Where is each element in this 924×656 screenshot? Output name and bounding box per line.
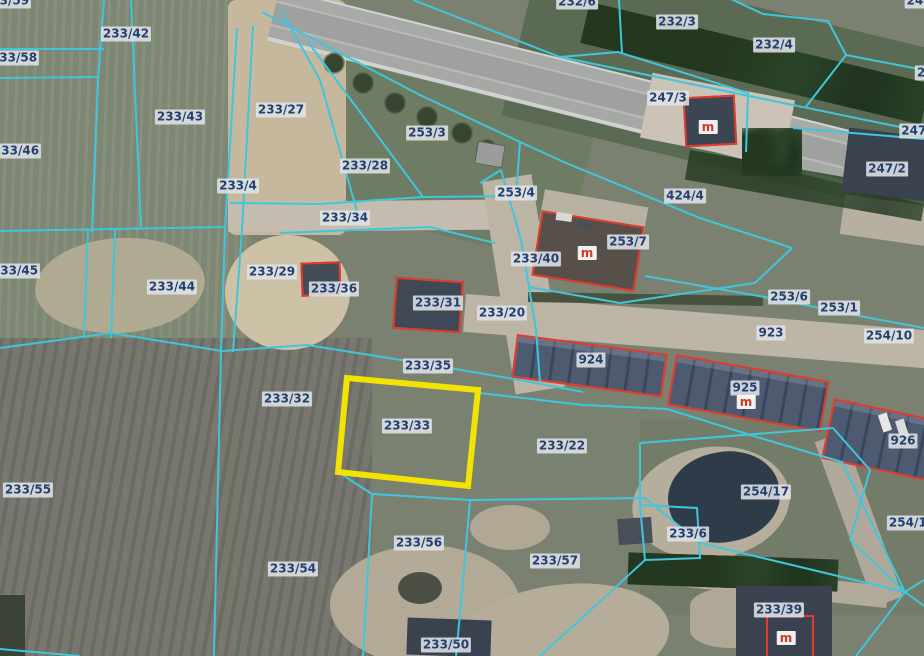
parcel-label: 233/44: [147, 280, 197, 295]
parcel-label: 926: [888, 434, 917, 449]
parcel-label: 233/31: [413, 296, 463, 311]
parcel-label: 233/32: [262, 392, 312, 407]
parcel-label: 923: [756, 326, 785, 341]
parcel-label: 232/6: [556, 0, 598, 10]
parcel-label: 233/22: [537, 439, 587, 454]
parcel-label: 2: [915, 66, 924, 81]
parcel-label: 233/6: [667, 527, 709, 542]
parcel-label: 924: [576, 353, 605, 368]
parcel-label: 233/46: [0, 144, 41, 159]
parcel-label: 233/54: [268, 562, 318, 577]
parcel-label: 233/36: [309, 282, 359, 297]
parcel-label: 233/27: [256, 103, 306, 118]
parcel-label: 233/34: [320, 211, 370, 226]
parcel-label: 233/39: [754, 603, 804, 618]
parcel-label: 424/4: [664, 189, 706, 204]
building-m-label: m: [737, 395, 756, 409]
parcel-label: 254/10: [864, 329, 914, 344]
parcel-label: 233/20: [477, 306, 527, 321]
parcel-label: 233/59: [0, 0, 31, 9]
parcel-label: 254/15: [887, 516, 924, 531]
parcel-label: 254/17: [741, 485, 791, 500]
parcel-label: 232/4: [753, 38, 795, 53]
parcel-label: 24: [905, 0, 924, 9]
parcel-label: 233/4: [217, 179, 259, 194]
labels-layer: 233/59233/42233/58233/43233/27233/46233/…: [0, 0, 924, 656]
building-m-label: m: [777, 631, 796, 645]
parcel-label: 233/55: [3, 483, 53, 498]
parcel-label: 247/2: [866, 162, 908, 177]
parcel-label: 247/: [899, 124, 924, 139]
parcel-label: 233/57: [530, 554, 580, 569]
building-m-label: m: [578, 246, 597, 260]
parcel-label: 233/58: [0, 51, 39, 66]
parcel-label: 925: [730, 381, 759, 396]
parcel-label: 253/6: [768, 290, 810, 305]
parcel-label: 233/40: [511, 252, 561, 267]
parcel-label: 233/45: [0, 264, 40, 279]
parcel-label: 233/56: [394, 536, 444, 551]
parcel-label: 233/42: [101, 27, 151, 42]
parcel-label: 233/50: [421, 638, 471, 653]
parcel-label: 253/4: [495, 186, 537, 201]
building-m-label: m: [699, 120, 718, 134]
parcel-label: 233/29: [247, 265, 297, 280]
parcel-label: 253/1: [818, 301, 860, 316]
parcel-label: 233/33: [382, 419, 432, 434]
parcel-label: 233/35: [403, 359, 453, 374]
parcel-label: 232/3: [656, 15, 698, 30]
map-canvas[interactable]: 233/59233/42233/58233/43233/27233/46233/…: [0, 0, 924, 656]
parcel-label: 233/28: [340, 159, 390, 174]
parcel-label: 247/3: [647, 91, 689, 106]
parcel-label: 253/7: [607, 235, 649, 250]
parcel-label: 233/43: [155, 110, 205, 125]
parcel-label: 253/3: [406, 126, 448, 141]
